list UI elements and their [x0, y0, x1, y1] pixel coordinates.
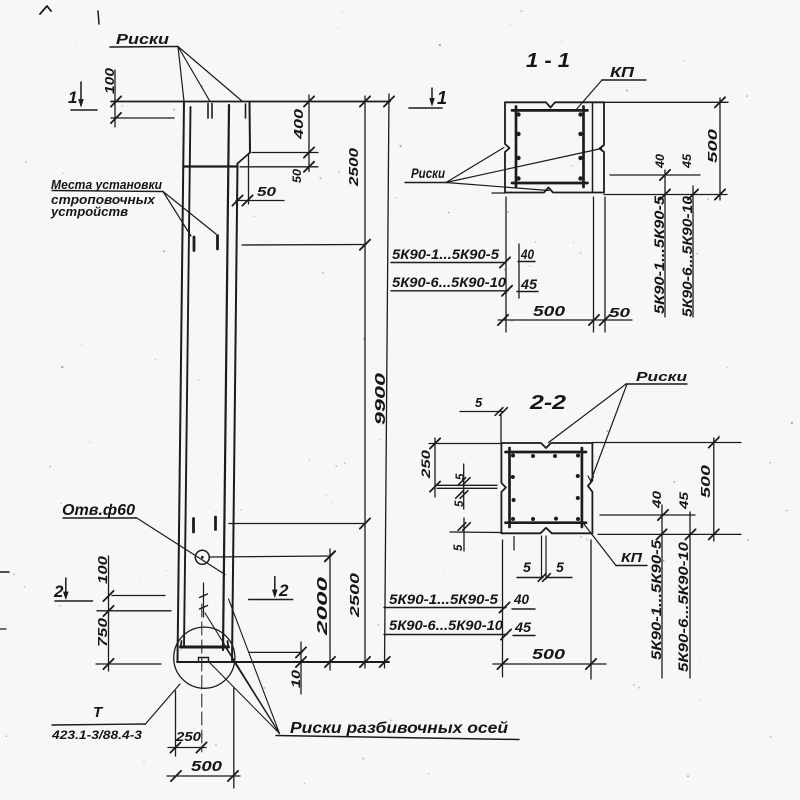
svg-text:500: 500 [698, 464, 713, 498]
svg-text:40: 40 [650, 491, 664, 510]
svg-text:Риски: Риски [116, 31, 169, 48]
svg-text:750: 750 [95, 617, 110, 647]
svg-text:40: 40 [520, 246, 534, 262]
svg-text:250: 250 [419, 450, 433, 480]
svg-text:КП: КП [610, 64, 635, 81]
svg-text:100: 100 [95, 555, 110, 584]
svg-text:5: 5 [475, 395, 483, 410]
svg-text:устройств: устройств [50, 204, 128, 219]
svg-text:2000: 2000 [314, 576, 331, 637]
svg-text:5К90-6...5К90-10: 5К90-6...5К90-10 [679, 196, 695, 317]
svg-text:50: 50 [257, 184, 277, 199]
svg-text:50: 50 [609, 305, 631, 320]
svg-text:5: 5 [455, 473, 467, 480]
svg-text:1: 1 [68, 88, 77, 107]
svg-text:5: 5 [556, 559, 564, 575]
svg-text:Риски: Риски [636, 369, 687, 384]
svg-text:5: 5 [454, 500, 466, 507]
svg-text:2: 2 [53, 582, 64, 601]
svg-text:250: 250 [175, 729, 202, 744]
svg-text:45: 45 [514, 619, 531, 635]
svg-text:5: 5 [453, 544, 465, 551]
svg-text:500: 500 [705, 128, 720, 163]
svg-text:500: 500 [532, 647, 565, 663]
svg-text:10: 10 [289, 670, 303, 688]
svg-text:500: 500 [533, 304, 565, 320]
svg-text:40: 40 [653, 154, 667, 169]
svg-text:1 - 1: 1 - 1 [526, 50, 570, 72]
svg-text:100: 100 [102, 67, 117, 94]
svg-text:2500: 2500 [346, 147, 361, 187]
svg-text:5К90-1...5К90-5: 5К90-1...5К90-5 [648, 540, 664, 660]
svg-text:КП: КП [621, 550, 643, 565]
svg-text:500: 500 [191, 759, 222, 775]
svg-text:5К90-6...5К90-10: 5К90-6...5К90-10 [675, 542, 691, 672]
svg-text:1: 1 [437, 88, 447, 108]
svg-text:50: 50 [290, 169, 304, 183]
svg-text:9900: 9900 [372, 372, 389, 425]
svg-text:2: 2 [278, 581, 289, 600]
svg-text:5К90-1...5К90-5: 5К90-1...5К90-5 [651, 196, 667, 314]
svg-text:400: 400 [291, 108, 306, 140]
svg-text:5К90-6...5К90-10: 5К90-6...5К90-10 [389, 617, 503, 633]
svg-text:Места установки: Места установки [51, 177, 162, 192]
svg-text:5К90-1...5К90-5: 5К90-1...5К90-5 [389, 591, 498, 607]
svg-text:2500: 2500 [347, 572, 362, 619]
svg-text:45: 45 [520, 276, 537, 292]
svg-text:Риски разбивочных осей: Риски разбивочных осей [290, 720, 508, 737]
svg-text:Отв.ф60: Отв.ф60 [62, 502, 135, 519]
svg-text:423.1-3/88.4-3: 423.1-3/88.4-3 [51, 728, 143, 742]
svg-text:40: 40 [513, 591, 529, 607]
svg-text:5: 5 [523, 559, 531, 575]
svg-text:45: 45 [680, 154, 694, 169]
svg-text:45: 45 [677, 492, 691, 511]
svg-text:2-2: 2-2 [529, 392, 566, 414]
svg-text:5К90-6...5К90-10: 5К90-6...5К90-10 [392, 274, 506, 290]
svg-text:5К90-1...5К90-5: 5К90-1...5К90-5 [392, 246, 499, 262]
svg-text:Риски: Риски [411, 165, 445, 181]
